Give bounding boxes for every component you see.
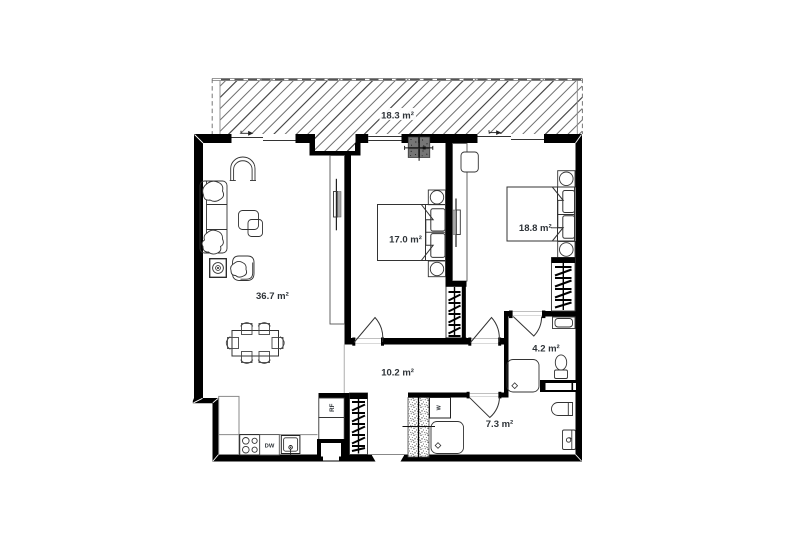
svg-text:18.8 m²: 18.8 m² [519, 223, 552, 234]
svg-text:W: W [437, 404, 443, 410]
svg-text:7.3 m²: 7.3 m² [486, 419, 513, 430]
svg-text:18.3 m²: 18.3 m² [381, 110, 414, 121]
svg-text:10.2 m²: 10.2 m² [381, 367, 414, 378]
svg-text:RF: RF [329, 403, 336, 411]
svg-text:36.7 m²: 36.7 m² [256, 291, 289, 302]
svg-text:17.0 m²: 17.0 m² [389, 234, 422, 245]
svg-text:DW: DW [265, 444, 275, 450]
svg-text:4.2 m²: 4.2 m² [532, 344, 559, 355]
